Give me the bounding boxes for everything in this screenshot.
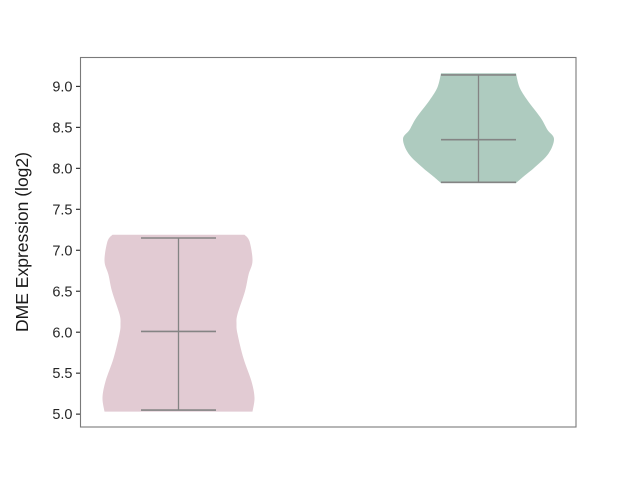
y-tick-label: 7.5 bbox=[52, 202, 72, 218]
axes-layer: 5.05.56.06.57.07.58.08.59.0 bbox=[52, 79, 80, 423]
y-tick-label: 5.0 bbox=[52, 407, 72, 423]
violins-layer bbox=[102, 73, 554, 411]
y-tick-label: 9.0 bbox=[52, 79, 72, 95]
page: { "chart_data": { "type": "violin", "tit… bbox=[0, 0, 640, 480]
y-tick-label: 8.0 bbox=[52, 161, 72, 177]
y-tick-label: 6.0 bbox=[52, 325, 72, 341]
y-axis-label: DME Expression (log2) bbox=[12, 152, 32, 332]
y-tick-label: 6.5 bbox=[52, 284, 72, 300]
y-tick-label: 8.5 bbox=[52, 120, 72, 136]
violin-chart-figure: 5.05.56.06.57.07.58.08.59.0 DME Expressi… bbox=[0, 0, 640, 480]
y-tick-label: 5.5 bbox=[52, 366, 72, 382]
y-tick-label: 7.0 bbox=[52, 243, 72, 259]
chart-canvas: 5.05.56.06.57.07.58.08.59.0 DME Expressi… bbox=[0, 0, 640, 480]
